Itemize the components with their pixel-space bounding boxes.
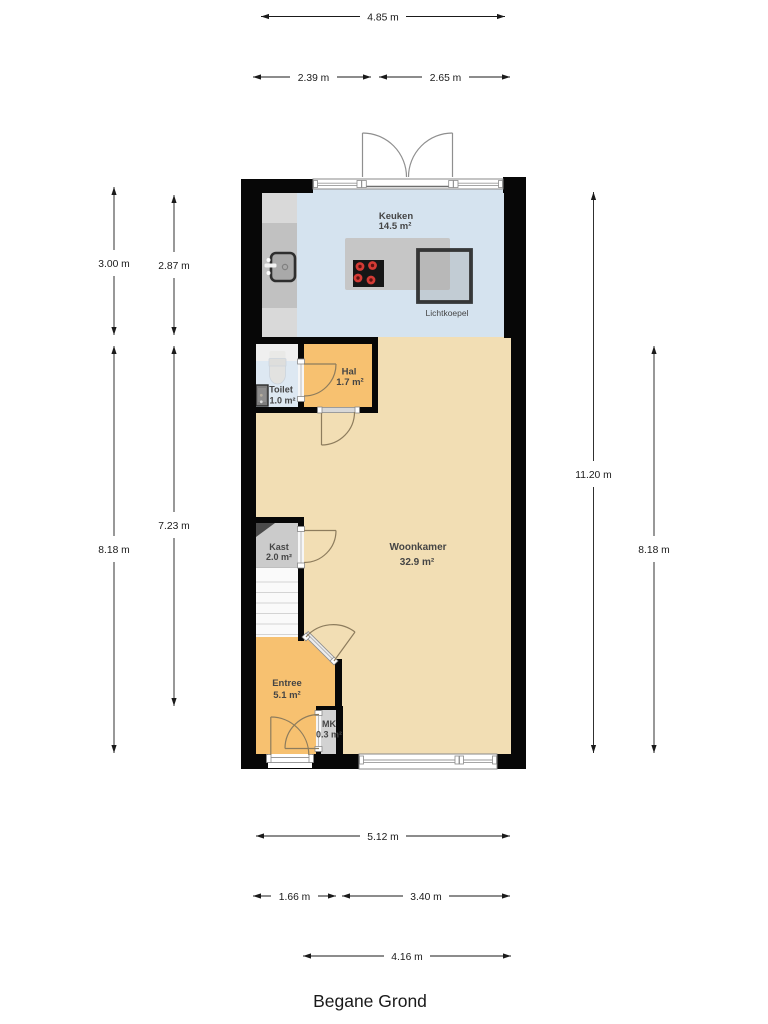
svg-text:Entree: Entree xyxy=(272,678,302,689)
svg-text:2.0 m²: 2.0 m² xyxy=(266,552,292,562)
svg-text:5.12 m: 5.12 m xyxy=(367,832,398,843)
svg-text:Toilet: Toilet xyxy=(269,385,293,395)
svg-text:Begane Grond: Begane Grond xyxy=(313,991,427,1011)
svg-text:2.87 m: 2.87 m xyxy=(158,261,189,272)
svg-text:4.85 m: 4.85 m xyxy=(367,13,398,24)
svg-text:14.5 m²: 14.5 m² xyxy=(379,221,412,232)
svg-text:1.7 m²: 1.7 m² xyxy=(336,377,363,388)
svg-text:5.1 m²: 5.1 m² xyxy=(273,690,300,701)
svg-text:Kast: Kast xyxy=(269,542,289,552)
svg-text:0.3 m²: 0.3 m² xyxy=(316,730,342,740)
svg-text:32.9 m²: 32.9 m² xyxy=(400,557,435,568)
svg-text:8.18 m: 8.18 m xyxy=(638,545,669,556)
svg-text:MK: MK xyxy=(322,719,336,729)
svg-text:8.18 m: 8.18 m xyxy=(98,545,129,556)
svg-text:Woonkamer: Woonkamer xyxy=(389,542,446,553)
svg-text:Lichtkoepel: Lichtkoepel xyxy=(425,308,468,318)
svg-text:1.0 m²: 1.0 m² xyxy=(269,396,295,406)
svg-text:4.16 m: 4.16 m xyxy=(391,952,422,963)
svg-text:11.20 m: 11.20 m xyxy=(575,470,611,481)
svg-text:1.66 m: 1.66 m xyxy=(279,892,310,903)
svg-text:3.00 m: 3.00 m xyxy=(98,259,129,270)
svg-text:3.40 m: 3.40 m xyxy=(410,892,441,903)
svg-text:7.23 m: 7.23 m xyxy=(158,521,189,532)
svg-text:2.65 m: 2.65 m xyxy=(430,73,461,84)
svg-text:2.39 m: 2.39 m xyxy=(298,73,329,84)
svg-text:Hal: Hal xyxy=(342,367,357,378)
